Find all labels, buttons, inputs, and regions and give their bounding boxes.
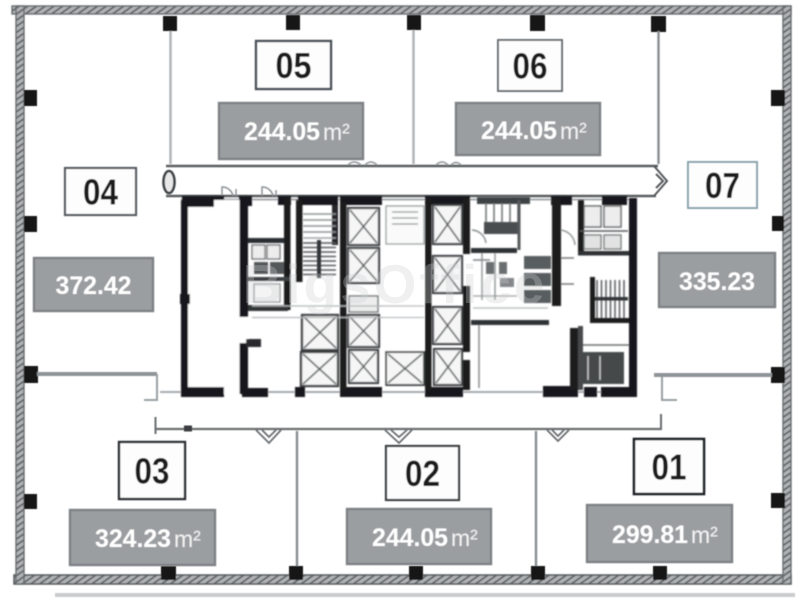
svg-text:m²: m²: [323, 119, 350, 145]
svg-text:335.23: 335.23: [679, 268, 755, 296]
svg-text:06: 06: [513, 46, 548, 87]
svg-text:03: 03: [135, 451, 170, 492]
svg-text:BigsOffice: BigsOffice: [242, 253, 547, 315]
svg-text:m²: m²: [451, 525, 478, 551]
svg-text:m²: m²: [691, 522, 718, 548]
svg-text:372.42: 372.42: [56, 272, 132, 300]
svg-text:07: 07: [705, 165, 740, 206]
svg-text:324.23: 324.23: [95, 525, 171, 553]
svg-text:m²: m²: [560, 118, 587, 144]
svg-text:244.05: 244.05: [481, 117, 557, 145]
svg-text:01: 01: [652, 447, 687, 488]
svg-text:02: 02: [405, 453, 440, 494]
svg-text:244.05: 244.05: [372, 524, 448, 552]
svg-text:m²: m²: [174, 526, 201, 552]
svg-text:244.05: 244.05: [244, 118, 320, 146]
svg-text:04: 04: [83, 172, 118, 213]
svg-text:05: 05: [276, 45, 312, 86]
svg-text:299.81: 299.81: [612, 521, 688, 549]
